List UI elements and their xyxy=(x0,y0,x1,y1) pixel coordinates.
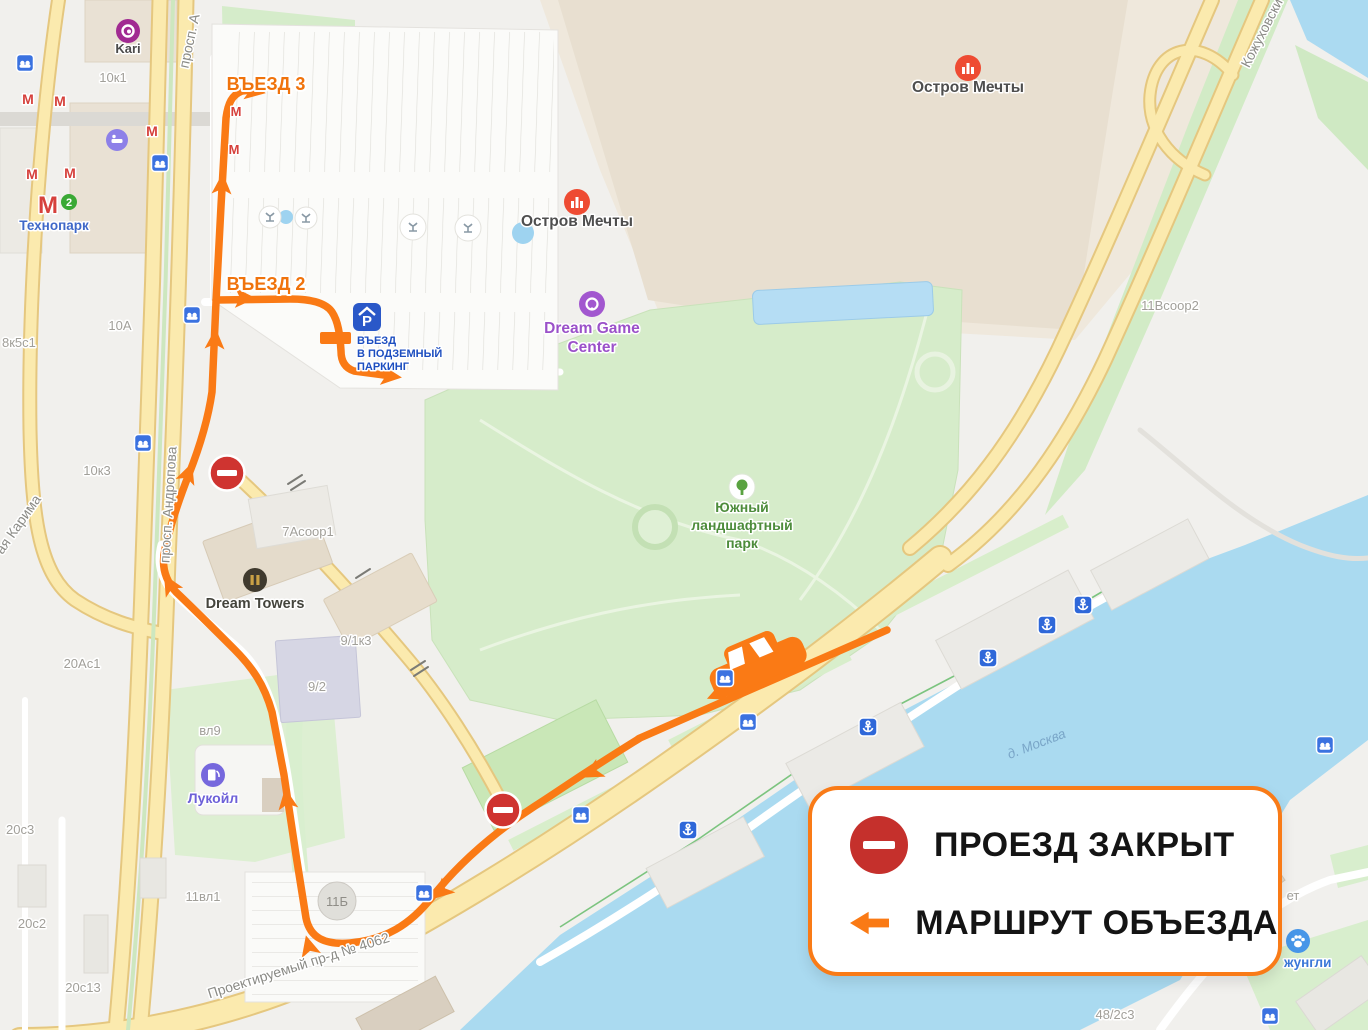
no-entry-legend-icon xyxy=(850,816,908,874)
metro-entrance-icon[interactable]: М xyxy=(231,104,242,119)
speed-bump-icon xyxy=(1317,737,1334,754)
no-entry-icon xyxy=(210,456,245,491)
park-tree-icon[interactable] xyxy=(729,474,755,500)
speed-bump-icon xyxy=(416,885,433,902)
pier-anchor-icon xyxy=(1074,596,1092,614)
pier-anchor-icon xyxy=(859,718,877,736)
speed-bump-icon xyxy=(152,155,169,172)
metro-entrance-icon[interactable]: М xyxy=(26,166,38,182)
speed-bump-icon xyxy=(1262,1008,1279,1025)
south-park-label-3[interactable]: парк xyxy=(726,535,759,551)
park-roundabout xyxy=(635,507,675,547)
dream-island-label-top[interactable]: Остров Мечты xyxy=(912,79,1024,96)
dream-towers-icon[interactable] xyxy=(243,568,267,592)
building-label-9-2: 9/2 xyxy=(308,679,326,694)
dream-towers-label[interactable]: Dream Towers xyxy=(206,596,305,612)
building-label-11b: 11Б xyxy=(326,894,348,909)
speed-bump-icon xyxy=(573,807,590,824)
speed-bump-icon xyxy=(740,714,757,731)
no-entry-icon xyxy=(486,793,521,828)
building-label-20as1: 20Ас1 xyxy=(64,656,101,671)
dream-island-icon-2[interactable] xyxy=(564,189,590,215)
building-label-8k5s1: 8к5с1 xyxy=(2,335,36,350)
entrance-2-label: ВЪЕЗД 2 xyxy=(227,274,306,294)
fountain-icon xyxy=(455,215,481,241)
legend-closed-label: ПРОЕЗД ЗАКРЫТ xyxy=(934,826,1235,865)
parking-entrance-bar xyxy=(320,332,351,344)
building-label-10k1: 10к1 xyxy=(99,70,126,85)
pier-anchor-icon xyxy=(679,821,697,839)
building-label-20s13: 20с13 xyxy=(65,980,100,995)
dream-game-center-label-1[interactable]: Dream Game xyxy=(544,320,640,337)
hotel-icon[interactable] xyxy=(106,129,128,151)
pet-store-paw-icon[interactable] xyxy=(1286,929,1310,953)
underground-parking-icon[interactable]: P xyxy=(353,303,381,331)
fountain-icon xyxy=(295,207,317,229)
metro-entrance-icon[interactable]: М xyxy=(54,93,66,109)
building-label-20s2: 20с2 xyxy=(18,916,46,931)
entrance-3-label: ВЪЕЗД 3 xyxy=(227,74,306,94)
fountain-icon xyxy=(259,206,281,228)
south-park-label-2[interactable]: ландшафтный xyxy=(691,517,792,533)
dream-game-center-icon[interactable] xyxy=(579,291,605,317)
building-label-20s3: 20с3 xyxy=(6,822,34,837)
jungle-label[interactable]: жунгли xyxy=(1283,955,1331,970)
metro-line-2-number: 2 xyxy=(66,197,72,209)
parking-label-line1: ВЪЕЗД xyxy=(357,335,396,347)
speed-bump-icon xyxy=(717,670,734,687)
speed-bump-icon xyxy=(135,435,152,452)
jungle-fragment-label: ет xyxy=(1287,888,1300,903)
metro-entrance-icon[interactable]: М xyxy=(22,91,34,107)
building-label-vl9: вл9 xyxy=(199,723,220,738)
kari-label[interactable]: Kari xyxy=(115,41,140,56)
dream-island-icon[interactable] xyxy=(955,55,981,81)
building-label-11vsoop2: 11Всоор2 xyxy=(1141,298,1199,313)
dream-island-building xyxy=(558,0,1128,330)
metro-entrance-icon[interactable]: М xyxy=(146,123,158,139)
lukoil-label[interactable]: Лукойл xyxy=(188,790,238,806)
kari-icon[interactable] xyxy=(116,19,140,43)
legend-row-closed: ПРОЕЗД ЗАКРЫТ xyxy=(850,816,1278,874)
fountain-icon xyxy=(400,214,426,240)
detour-arrow-icon xyxy=(850,900,889,946)
map-canvas[interactable]: P М М М М М М М М 2 Технопарк Kari Остро… xyxy=(0,0,1368,1030)
metro-entrance-icon[interactable]: М xyxy=(229,142,240,157)
parking-label-line2: В ПОДЗЕМНЫЙ xyxy=(357,347,442,360)
technopark-metro-icon[interactable]: М xyxy=(38,192,58,219)
building-label-48-2s3: 48/2с3 xyxy=(1095,1007,1134,1022)
pedestrian-bridge xyxy=(0,112,240,126)
building-label-7asoop1: 7Асоор1 xyxy=(282,524,333,539)
lukoil-icon[interactable] xyxy=(201,763,225,787)
legend-panel: ПРОЕЗД ЗАКРЫТ МАРШРУТ ОБЪЕЗДА xyxy=(808,786,1282,976)
metro-entrance-icon[interactable]: М xyxy=(64,165,76,181)
parking-label-line3: ПАРКИНГ xyxy=(357,361,410,373)
legend-detour-label: МАРШРУТ ОБЪЕЗДА xyxy=(915,904,1278,943)
legend-row-detour: МАРШРУТ ОБЪЕЗДА xyxy=(850,900,1278,946)
speed-bump-icon xyxy=(184,307,201,324)
dream-island-label-mid[interactable]: Остров Мечты xyxy=(521,213,633,230)
speed-bump-icon xyxy=(17,55,34,72)
dream-game-center-label-2[interactable]: Center xyxy=(567,339,616,356)
parking-rows-1 xyxy=(228,32,554,172)
pier-anchor-icon xyxy=(1038,616,1056,634)
building-label-11vl1: 11вл1 xyxy=(186,889,221,904)
technopark-label[interactable]: Технопарк xyxy=(19,218,89,233)
south-park-label-1[interactable]: Южный xyxy=(715,499,769,515)
pier-anchor-icon xyxy=(979,649,997,667)
parking-icon-letter: P xyxy=(362,313,372,330)
building-label-10k3: 10к3 xyxy=(83,463,110,478)
building-label-10a: 10А xyxy=(108,318,131,333)
building-label-9-1k3: 9/1к3 xyxy=(341,633,372,648)
